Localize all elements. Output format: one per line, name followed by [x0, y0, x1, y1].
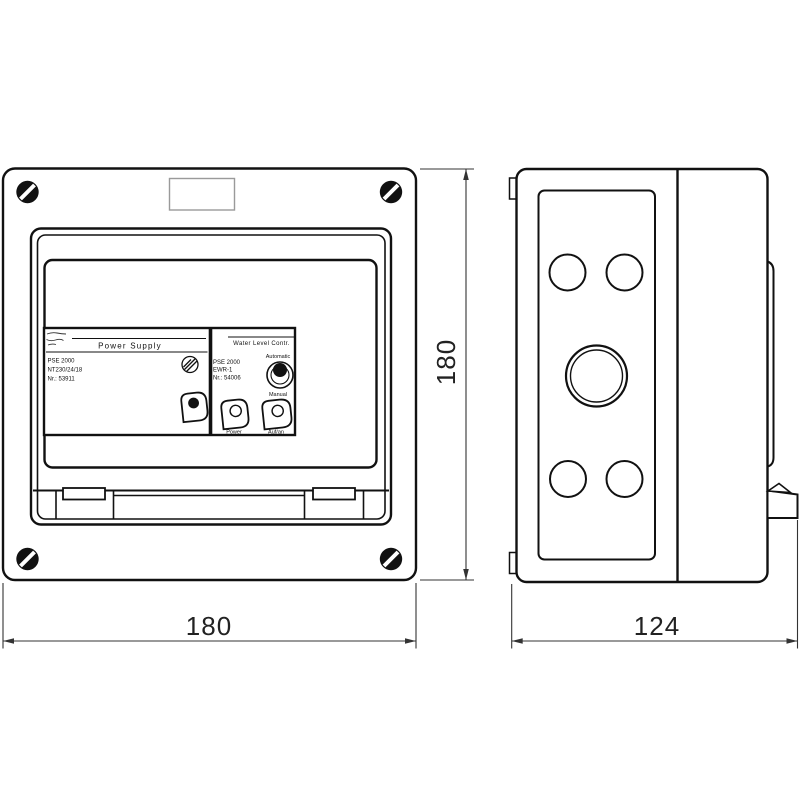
corner-screw-icon: [380, 548, 402, 570]
dimension-front-height: 180: [420, 169, 474, 580]
ps-title: Power Supply: [98, 342, 162, 351]
dim-front-height-value: 180: [431, 339, 461, 385]
led-indicator-icon: [221, 399, 250, 430]
door-hinge-strip: [33, 488, 389, 519]
dim-arrow: [787, 638, 798, 644]
front-view: Power Supply PSE 2000 NT230/24/18 Nr.: 5…: [3, 169, 416, 581]
dimension-front-width: 180: [3, 583, 416, 649]
dim-arrow: [463, 169, 469, 180]
mode-manual-label: Manual: [269, 392, 287, 398]
mounting-hook-tip: [768, 484, 791, 493]
dim-arrow: [3, 638, 14, 644]
corner-screw-icon: [16, 181, 38, 203]
dim-arrow: [405, 638, 416, 644]
large-gland-hole: [566, 346, 627, 407]
led-indicator-icon: [262, 399, 293, 430]
corner-screw-icon: [380, 181, 402, 203]
mode-auto-label: Automatic: [266, 354, 291, 360]
led-indicator-icon: [181, 392, 209, 422]
mounting-hook: [768, 491, 798, 519]
dim-arrow: [512, 638, 523, 644]
wl-title: Water Level Contr.: [233, 341, 290, 347]
ps-serial: Nr.: 53911: [48, 377, 76, 383]
dim-front-width-value: 180: [186, 611, 232, 641]
enclosure-drawing: Power Supply PSE 2000 NT230/24/18 Nr.: 5…: [0, 0, 800, 800]
side-gland-face: [539, 191, 656, 560]
cable-gland-hole: [550, 255, 586, 291]
rating-plate: Power Supply PSE 2000 NT230/24/18 Nr.: 5…: [44, 328, 295, 436]
technical-drawing-page: Power Supply PSE 2000 NT230/24/18 Nr.: 5…: [0, 0, 800, 800]
latch-tab: [313, 488, 355, 500]
wl-serial: Nr.: 54006: [213, 376, 241, 382]
corner-screw-icon: [16, 548, 38, 570]
mode-knob-icon: [267, 362, 293, 388]
dim-side-depth-value: 124: [634, 611, 680, 641]
led-action-label: Auf/an: [268, 430, 284, 436]
side-view: [510, 169, 798, 582]
top-label-window: [170, 179, 235, 211]
led-power-label: Power: [226, 430, 242, 436]
cable-gland-hole: [550, 461, 586, 497]
cable-gland-hole: [607, 255, 643, 291]
latch-tab: [63, 488, 105, 500]
cable-gland-hole: [607, 461, 643, 497]
wl-type: EWR-1: [213, 368, 233, 374]
ps-type: NT230/24/18: [48, 368, 83, 374]
ps-model: PSE 2000: [48, 359, 76, 365]
wl-model: PSE 2000: [213, 360, 241, 366]
side-body-outline: [517, 169, 768, 582]
dim-arrow: [463, 569, 469, 580]
